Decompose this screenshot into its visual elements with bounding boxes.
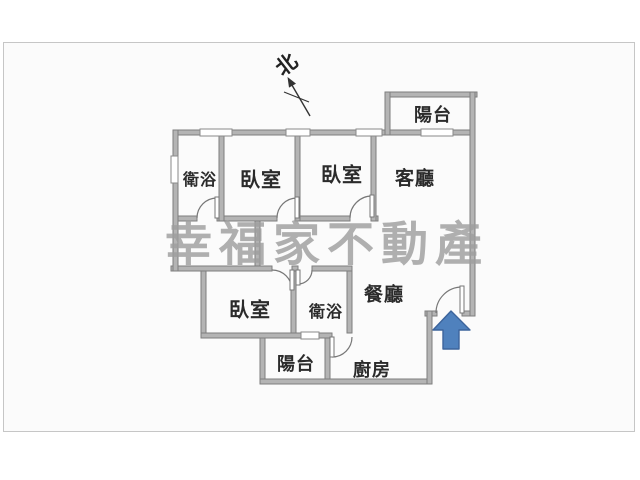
north-arrow-icon <box>284 77 310 116</box>
room-label-dining-room: 餐廳 <box>364 280 404 307</box>
entrance-arrow-icon <box>433 311 470 349</box>
agency-watermark: 幸福家不動產 <box>165 222 489 269</box>
room-label-bedroom-top-middle: 臥室 <box>321 159 363 188</box>
room-label-bathroom-top: 衛浴 <box>183 166 217 190</box>
room-label-bedroom-top-left: 臥室 <box>240 164 282 193</box>
room-label-bathroom-lower: 衛浴 <box>309 298 343 322</box>
room-label-bedroom-lower: 臥室 <box>229 294 271 323</box>
room-label-kitchen: 廚房 <box>353 356 391 382</box>
floorplan-image: 北 衛浴 臥室 臥室 客廳 陽台 餐廳 臥室 衛浴 陽台 廚房 幸福家不動產 <box>0 0 640 480</box>
room-label-balcony-bottom: 陽台 <box>277 350 315 376</box>
room-label-balcony-top: 陽台 <box>414 101 452 127</box>
room-label-living-room: 客廳 <box>395 164 435 191</box>
